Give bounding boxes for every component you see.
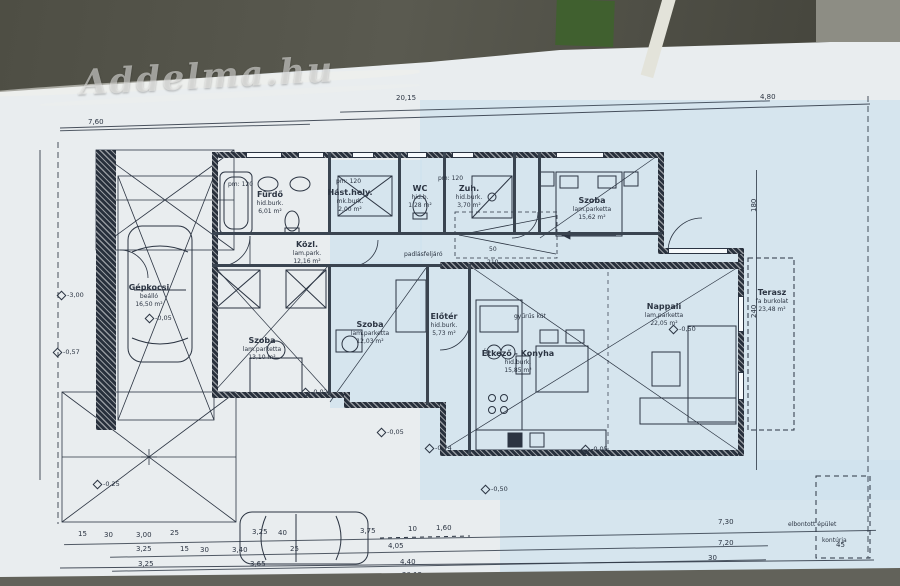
dim-bottom: 3,25 — [252, 528, 268, 536]
partition — [468, 264, 471, 454]
room-label-furdo: Fürdő hid.burk. 6,01 m² — [245, 190, 295, 215]
elevation-value: -0,05 — [155, 314, 172, 322]
room-label-beallo: Gépkocsi beálló 16,50 m² — [126, 283, 172, 308]
window — [407, 152, 427, 158]
window — [452, 152, 474, 158]
room-name: Terasz — [746, 288, 798, 298]
room-floor: hid.burk. — [475, 359, 561, 367]
wardrobe-icon — [216, 270, 260, 308]
elevation-marker: -3,00 — [58, 291, 84, 299]
wall-right-top — [658, 152, 664, 254]
room-area: 5,73 m² — [423, 330, 465, 338]
wall-bottom — [344, 402, 444, 408]
dim-top: 7,60 — [88, 118, 104, 126]
dim-bottom: 4,40 — [400, 558, 416, 566]
room-name: Gépkocsi — [126, 283, 172, 293]
room-floor: lam.parketta — [232, 346, 292, 354]
dim-bottom: 7,20 — [718, 539, 734, 547]
window — [352, 152, 374, 158]
window — [298, 152, 324, 158]
elevation-marker: -0,25 — [94, 480, 120, 488]
elevation-value: -0,25 — [103, 480, 120, 488]
elevation-marker: -0,57 — [54, 348, 80, 356]
room-floor: hid.b. — [404, 194, 436, 202]
wall-corridor — [440, 262, 744, 269]
parapet-note: pm: 120 — [336, 178, 361, 185]
room-area: 2,00 m² — [322, 206, 378, 214]
room-name: Szoba — [232, 336, 292, 346]
dim-right: 240 — [750, 305, 758, 318]
room-name: Nappali — [636, 302, 692, 312]
wall-left — [212, 152, 218, 398]
room-name: Közl. — [283, 240, 331, 250]
dim-bottom: 40 — [278, 529, 287, 537]
room-label-wc: WC hid.b. 1,28 m² — [404, 184, 436, 209]
parapet-note: pm: 120 — [228, 181, 253, 188]
room-label-zuh: Zuh. hid.burk. 3,70 m² — [446, 184, 492, 209]
room-label-szoba-bal: Szoba lam.parketta 13,10 m² — [232, 336, 292, 361]
room-area: 13,10 m² — [232, 354, 292, 362]
room-name: Szoba — [342, 320, 398, 330]
elevation-value: -0,02 — [311, 388, 328, 396]
dim-bottom: 3,75 — [360, 527, 376, 535]
room-area: 12,16 m² — [283, 258, 331, 266]
dim-bottom: 15 — [78, 530, 87, 538]
dim-bottom: 15 — [180, 545, 189, 553]
room-area: 16,50 m² — [126, 301, 172, 309]
wardrobe-icon — [396, 280, 426, 332]
partition — [538, 152, 541, 235]
dim-bottom: 25 — [170, 529, 179, 537]
dim-bottom: 10 — [408, 525, 417, 533]
dim-bottom: 30 — [708, 554, 717, 562]
parapet-note: pm: 120 — [438, 175, 463, 182]
partition — [513, 152, 516, 235]
room-floor: hid.burk. — [446, 194, 492, 202]
window — [246, 152, 282, 158]
dim-bottom: 30 — [104, 531, 113, 539]
elevation-value: -0,50 — [491, 485, 508, 493]
room-floor: lam.parketta — [563, 206, 621, 214]
door-width-note: 50 — [489, 246, 497, 253]
elevation-marker: -0,50 — [482, 485, 508, 493]
elevation-value: -0,74 — [435, 444, 452, 452]
room-floor: lam.parketta — [636, 312, 692, 320]
roof-outline-bottom-left — [62, 392, 236, 522]
elevation-value: -0,57 — [63, 348, 80, 356]
wall-right — [738, 248, 744, 456]
dim-bottom: 30 — [200, 546, 209, 554]
dim-bottom: 1,60 — [436, 524, 452, 532]
attic-note: padlásfeljáró — [404, 251, 443, 258]
elevation-marker: -0,05 — [582, 445, 608, 453]
room-label-nappali: Nappali lam.parketta 22,05 m² — [636, 302, 692, 327]
dim-bottom: 3,00 — [136, 531, 152, 539]
partition — [328, 264, 331, 395]
dim-right: 180 — [750, 199, 758, 212]
room-label-kozl: Közl. lam.park. 12,16 m² — [283, 240, 331, 265]
room-area: 3,70 m² — [446, 202, 492, 210]
room-floor: hid.burk. — [245, 200, 295, 208]
driveway-hatch — [96, 150, 116, 430]
room-name: Hást.hely. — [322, 188, 378, 198]
dim-bottom: 3,25 — [136, 545, 152, 553]
room-area: 12,03 m² — [342, 338, 398, 346]
room-floor: lam.parketta — [342, 330, 398, 338]
door-height-note: 210 — [487, 259, 498, 266]
room-name: Előtér — [423, 312, 465, 322]
dimension-line — [756, 170, 757, 470]
room-name: Étkező - Konyha — [475, 349, 561, 359]
room-name: Zuh. — [446, 184, 492, 194]
dim-top: 4,80 — [760, 93, 776, 101]
demolished-note: elbontott épület — [788, 521, 836, 528]
room-name: Fürdő — [245, 190, 295, 200]
room-floor: beálló — [126, 293, 172, 301]
elevation-marker: -0,05 — [378, 428, 404, 436]
room-label-hast: Hást.hely. mk.burk. 2,00 m² — [322, 188, 378, 213]
window — [738, 372, 744, 400]
room-area: 1,28 m² — [404, 202, 436, 210]
room-area: 15,85 m² — [475, 367, 561, 375]
elevation-value: -3,00 — [67, 291, 84, 299]
partition — [398, 152, 401, 235]
elevation-value: -0,05 — [591, 445, 608, 453]
room-name: WC — [404, 184, 436, 194]
dim-bottom: 25 — [290, 545, 299, 553]
room-area: 6,01 m² — [245, 208, 295, 216]
window — [556, 152, 604, 158]
room-label-szoba-kozep: Szoba lam.parketta 12,03 m² — [342, 320, 398, 345]
room-name: Szoba — [563, 196, 621, 206]
terrace-door — [668, 248, 728, 254]
terrace-outline — [748, 258, 794, 430]
sink-icon — [258, 177, 278, 191]
elevation-marker: -0,74 — [426, 444, 452, 452]
dim-top: 20,15 — [396, 94, 416, 102]
elevation-marker: -0,02 — [302, 388, 328, 396]
room-label-eloter: Előtér hid.burk. 5,73 m² — [423, 312, 465, 337]
room-label-konyha: Étkező - Konyha hid.burk. 15,85 m² — [475, 349, 561, 374]
elevation-marker: -0,05 — [146, 314, 172, 322]
dim-right: 45 — [836, 541, 845, 549]
wardrobe-icon — [286, 270, 326, 308]
room-area: 15,62 m² — [563, 214, 621, 222]
room-floor: mk.burk. — [322, 198, 378, 206]
dim-bottom: 4,05 — [388, 542, 404, 550]
room-label-szoba-eny: Szoba lam.parketta 15,62 m² — [563, 196, 621, 221]
elevation-value: -0,05 — [387, 428, 404, 436]
room-floor: hid.burk. — [423, 322, 465, 330]
window — [738, 296, 744, 332]
elevation-marker: -0,50 — [670, 325, 696, 333]
sink-icon — [290, 177, 310, 191]
partition — [212, 232, 662, 235]
floorplan-photo: Fürdő hid.burk. 6,01 m² Hást.hely. mk.bu… — [0, 0, 900, 586]
car-icon — [240, 512, 368, 564]
dim-bottom: 3,40 — [232, 546, 248, 554]
well-note: gyűrűs kút — [514, 313, 546, 320]
dim-bottom: 3,65 — [250, 560, 266, 568]
elevation-value: -0,50 — [679, 325, 696, 333]
dim-bottom: 3,25 — [138, 560, 154, 568]
sofa-icon — [640, 326, 736, 424]
room-floor: lam.park. — [283, 250, 331, 258]
dim-bottom: 7,30 — [718, 518, 734, 526]
kitchen-counter-icon — [476, 300, 606, 450]
